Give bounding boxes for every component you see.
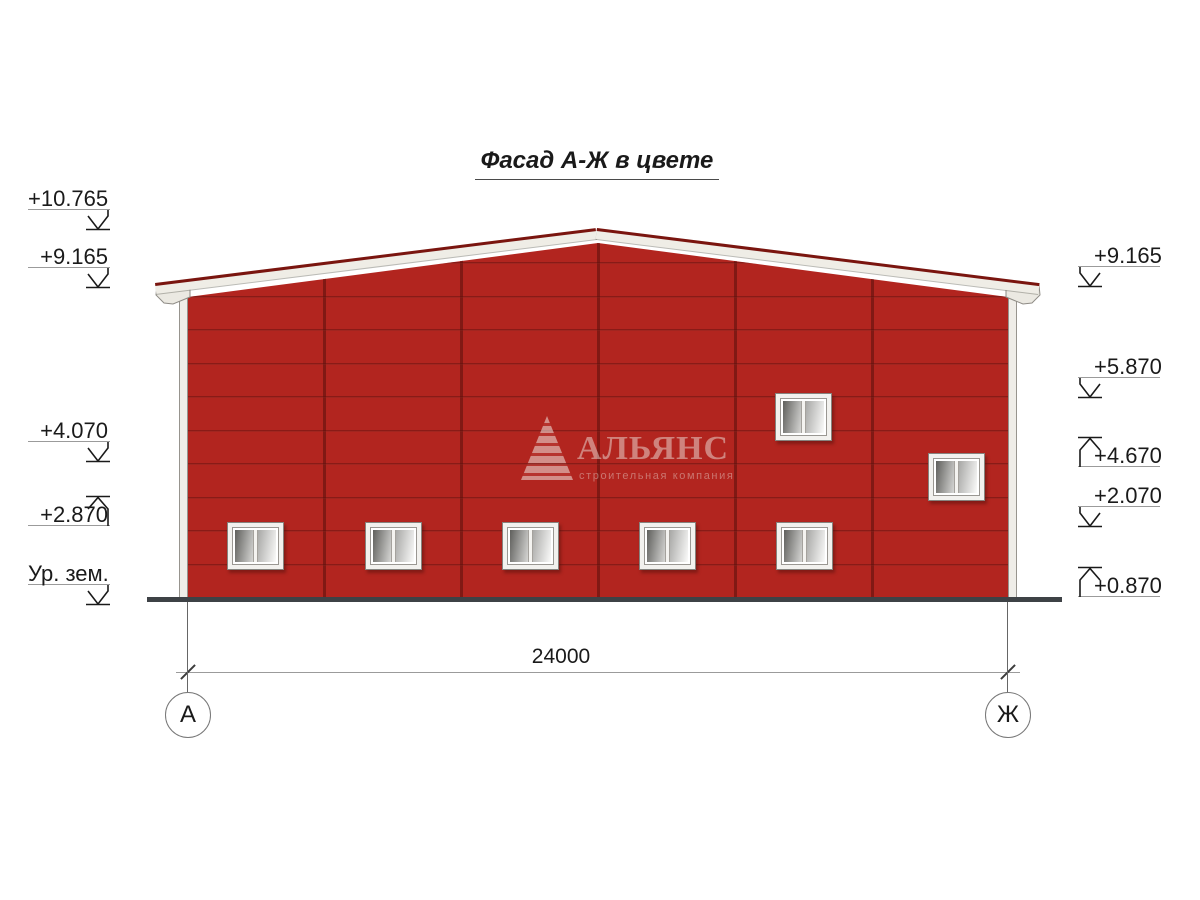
axis-line-a — [187, 602, 188, 692]
pyramid-logo-icon — [521, 416, 573, 480]
elevation-arrow-down-icon — [1077, 378, 1103, 399]
window-upper — [928, 453, 985, 501]
watermark: АЛЬЯНС строительная компания — [515, 412, 745, 490]
elevation-arrow-up-icon — [85, 495, 111, 526]
elevation-arrow-down-icon — [85, 268, 111, 289]
window — [227, 522, 284, 570]
elevation-label: Ур. зем. — [28, 563, 110, 585]
panel-joint-vertical — [323, 228, 326, 601]
window-upper — [775, 393, 832, 441]
window — [502, 522, 559, 570]
elevation-label: +4.070 — [28, 420, 110, 442]
window — [776, 522, 833, 570]
panel-joint-horizontal — [188, 564, 1008, 566]
elevation-arrow-down-icon — [85, 442, 111, 463]
axis-line-zh — [1007, 602, 1008, 692]
building-facade: АЛЬЯНС строительная компания — [188, 228, 1008, 601]
panel-joint-horizontal — [188, 296, 1008, 298]
corner-trim-left — [179, 291, 188, 600]
axis-bubble-zh: Ж — [985, 692, 1031, 738]
elevation-marker: +4.670 — [1078, 445, 1160, 467]
elevation-label: +10.765 — [28, 188, 110, 210]
dimension-value: 24000 — [511, 645, 611, 669]
corner-trim-right — [1008, 291, 1017, 600]
panel-joint-horizontal — [188, 329, 1008, 331]
elevation-marker-ground: Ур. зем. — [28, 563, 110, 585]
panel-joint-vertical — [460, 228, 463, 601]
elevation-arrow-down-icon — [85, 210, 111, 231]
elevation-marker: +2.070 — [1078, 485, 1160, 507]
elevation-arrow-down-icon — [1077, 267, 1103, 288]
elevation-marker: +0.870 — [1078, 575, 1160, 597]
elevation-label: +5.870 — [1078, 356, 1160, 378]
elevation-marker: +9.165 — [28, 246, 110, 268]
elevation-arrow-down-icon — [85, 585, 111, 606]
axis-bubble-a: А — [165, 692, 211, 738]
elevation-arrow-up-icon — [1077, 436, 1103, 467]
elevation-arrow-down-icon — [1077, 507, 1103, 528]
elevation-marker: +5.870 — [1078, 356, 1160, 378]
elevation-arrow-up-icon — [1077, 566, 1103, 597]
window — [365, 522, 422, 570]
watermark-tagline: строительная компания — [579, 470, 734, 482]
elevation-marker: +2.870 — [28, 504, 110, 526]
elevation-marker: +4.070 — [28, 420, 110, 442]
elevation-marker: +10.765 — [28, 188, 110, 210]
panel-joint-vertical — [871, 228, 874, 601]
facade-drawing: Фасад А-Ж в цвете АЛЬЯНС строительная ко… — [0, 0, 1200, 900]
window — [639, 522, 696, 570]
ground-line — [147, 597, 1062, 602]
elevation-marker: +9.165 — [1078, 245, 1160, 267]
elevation-label: +9.165 — [28, 246, 110, 268]
elevation-label: +2.070 — [1078, 485, 1160, 507]
panel-joint-horizontal — [188, 497, 1008, 499]
panel-joint-horizontal — [188, 530, 1008, 532]
watermark-brand: АЛЬЯНС — [577, 430, 729, 468]
panel-joint-horizontal — [188, 396, 1008, 398]
drawing-title: Фасад А-Ж в цвете — [475, 147, 719, 180]
elevation-label: +9.165 — [1078, 245, 1160, 267]
panel-joint-horizontal — [188, 363, 1008, 365]
dimension-line — [176, 672, 1020, 673]
